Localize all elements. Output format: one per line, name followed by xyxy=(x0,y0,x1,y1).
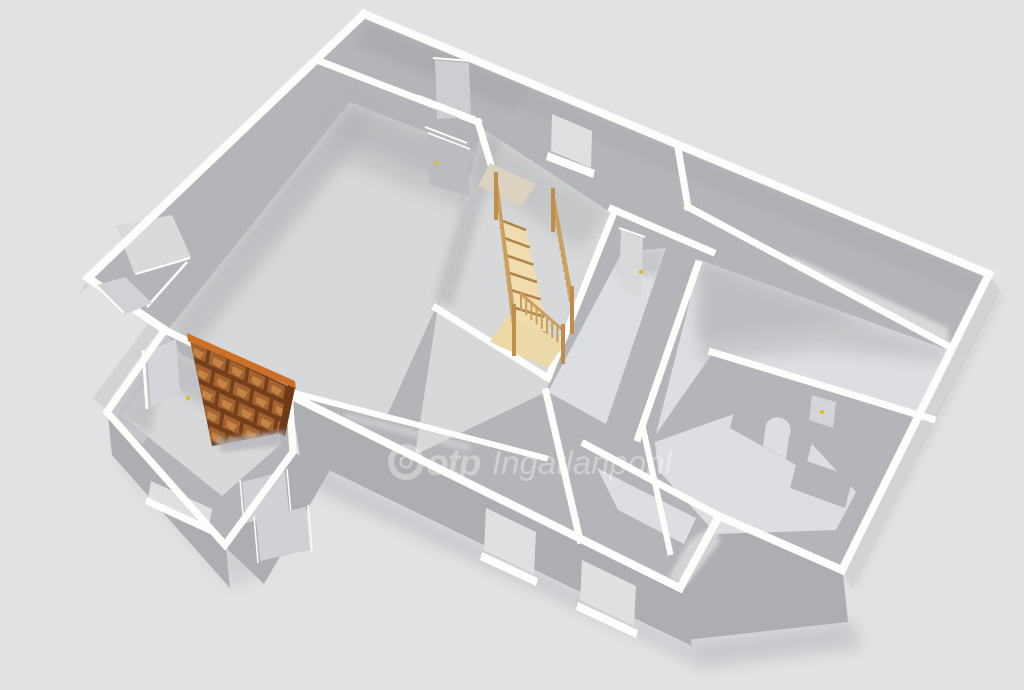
svg-text:otp: otp xyxy=(426,442,481,483)
svg-text:Ingatlanponl: Ingatlanponl xyxy=(492,444,673,481)
